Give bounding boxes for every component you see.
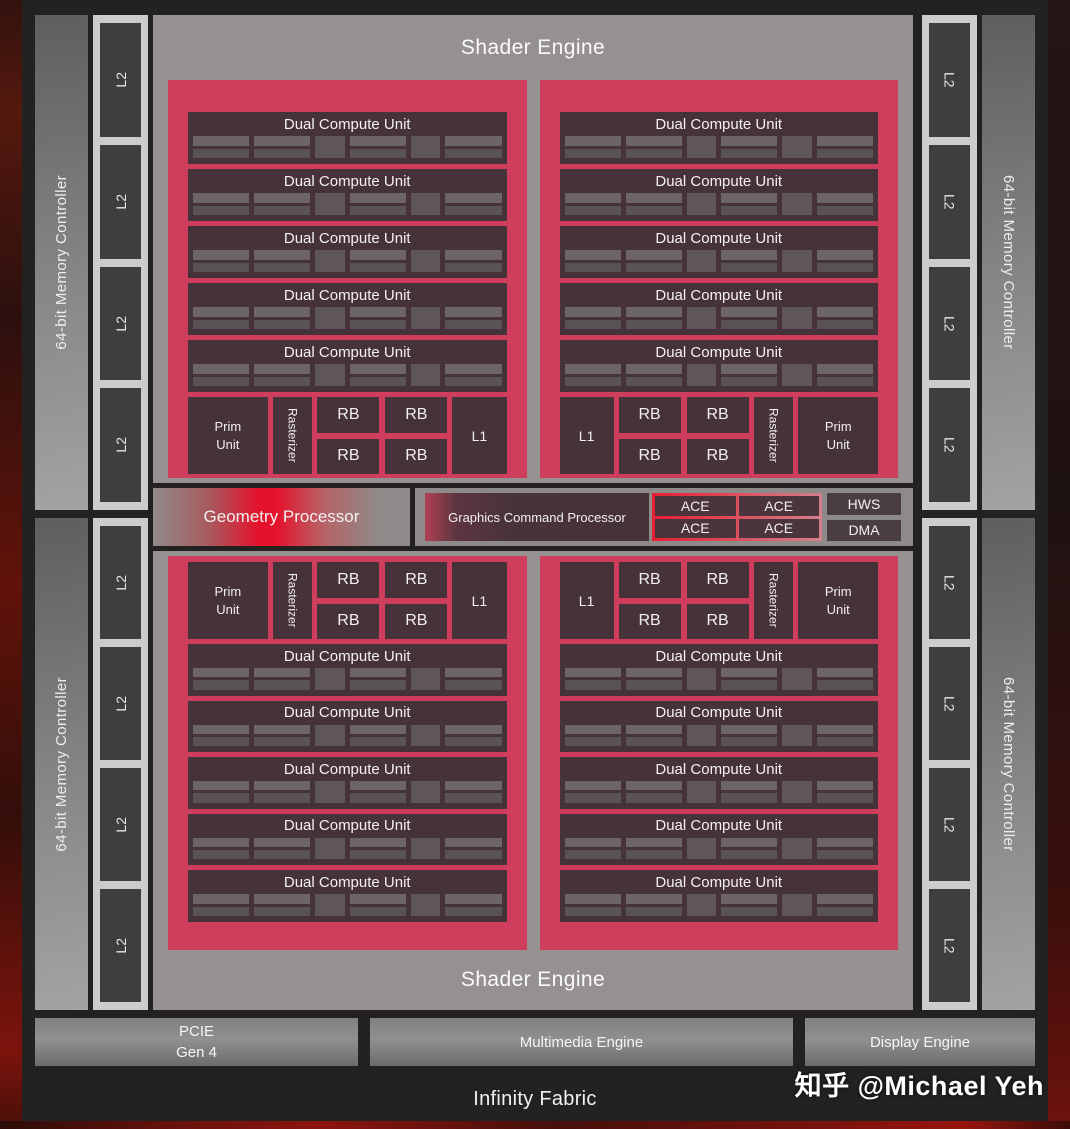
watermark: 知乎 @Michael Yeh <box>795 1064 1044 1103</box>
dual-compute-unit: Dual Compute Unit <box>560 757 879 809</box>
simd-block <box>445 250 501 260</box>
prim-unit-label: Prim Unit <box>208 418 248 453</box>
simd-pair <box>721 838 777 860</box>
rasterizer: Rasterizer <box>754 397 794 474</box>
rb-grid: RBRBRBRB <box>619 397 749 474</box>
simd-block <box>721 850 777 859</box>
rb-grid: RBRBRBRB <box>317 562 447 639</box>
simd-block <box>254 193 310 203</box>
dcu-subblocks <box>188 894 507 922</box>
display-engine-block: Display Engine <box>805 1018 1035 1066</box>
cache-block <box>782 838 812 860</box>
simd-block <box>445 193 501 203</box>
rasterizer-label: Rasterizer <box>766 573 780 628</box>
simd-block <box>350 193 406 203</box>
simd-block <box>565 250 621 260</box>
simd-block <box>193 377 249 387</box>
simd-block <box>445 307 501 317</box>
cache-block <box>411 250 441 272</box>
prim-unit: Prim Unit <box>798 562 878 639</box>
l2-block: L2 <box>100 23 141 137</box>
simd-pair <box>626 725 682 747</box>
dual-compute-unit: Dual Compute Unit <box>188 757 507 809</box>
simd-block <box>350 781 406 790</box>
simd-pair <box>817 307 873 329</box>
l2-label: L2 <box>113 696 129 712</box>
rasterizer: Rasterizer <box>273 397 313 474</box>
simd-block <box>817 206 873 216</box>
dcu-title: Dual Compute Unit <box>188 814 507 838</box>
simd-block <box>817 263 873 273</box>
simd-block <box>817 907 873 916</box>
l2-label: L2 <box>113 437 129 453</box>
simd-pair <box>254 364 310 386</box>
cache-block <box>315 781 345 803</box>
simd-block <box>626 680 682 689</box>
simd-block <box>817 838 873 847</box>
rb-block: RB <box>619 439 681 475</box>
simd-block <box>565 894 621 903</box>
simd-pair <box>350 781 406 803</box>
l2-block: L2 <box>929 768 970 881</box>
simd-block <box>817 781 873 790</box>
dual-compute-unit: Dual Compute Unit <box>188 340 507 392</box>
simd-block <box>350 680 406 689</box>
rb-block: RB <box>687 397 749 433</box>
simd-block <box>817 725 873 734</box>
cache-block <box>687 193 717 215</box>
rb-block: RB <box>317 562 379 598</box>
simd-block <box>350 838 406 847</box>
ace-block: ACE <box>739 496 820 516</box>
simd-pair <box>445 838 501 860</box>
simd-pair <box>565 307 621 329</box>
simd-pair <box>565 364 621 386</box>
simd-block <box>445 737 501 746</box>
simd-block <box>626 206 682 216</box>
simd-pair <box>350 668 406 690</box>
simd-pair <box>817 193 873 215</box>
dcu-title: Dual Compute Unit <box>560 340 879 364</box>
l2-block: L2 <box>100 388 141 502</box>
dual-compute-unit: Dual Compute Unit <box>560 226 879 278</box>
simd-block <box>445 668 501 677</box>
l1-cache: L1 <box>560 397 614 474</box>
simd-block <box>350 250 406 260</box>
simd-pair <box>350 838 406 860</box>
cache-block <box>315 838 345 860</box>
prim-unit-label: Prim Unit <box>208 583 248 618</box>
dcu-subblocks <box>188 307 507 335</box>
simd-pair <box>626 668 682 690</box>
dcu-title: Dual Compute Unit <box>560 814 879 838</box>
cache-block <box>687 838 717 860</box>
dcu-subblocks <box>560 136 879 164</box>
simd-block <box>626 364 682 374</box>
simd-block <box>626 193 682 203</box>
photo-edge-left <box>0 0 22 1129</box>
dual-compute-unit: Dual Compute Unit <box>188 226 507 278</box>
simd-block <box>626 136 682 146</box>
simd-block <box>193 364 249 374</box>
rasterizer: Rasterizer <box>754 562 794 639</box>
simd-pair <box>445 136 501 158</box>
simd-block <box>817 377 873 387</box>
simd-pair <box>817 838 873 860</box>
l2-label: L2 <box>942 316 958 332</box>
dual-compute-unit: Dual Compute Unit <box>560 340 879 392</box>
l2-label: L2 <box>113 72 129 88</box>
cache-block <box>315 136 345 158</box>
simd-pair <box>565 725 621 747</box>
cache-block <box>411 136 441 158</box>
dcu-title: Dual Compute Unit <box>188 169 507 193</box>
simd-block <box>445 894 501 903</box>
simd-block <box>193 206 249 216</box>
simd-block <box>445 263 501 273</box>
dual-compute-unit: Dual Compute Unit <box>188 112 507 164</box>
shader-array-bottom-right: L1 RBRBRBRB Rasterizer Prim Unit Dual Co… <box>540 556 899 950</box>
simd-block <box>445 320 501 330</box>
dual-compute-unit: Dual Compute Unit <box>188 814 507 866</box>
l2-block: L2 <box>929 388 970 502</box>
simd-block <box>254 737 310 746</box>
simd-pair <box>350 894 406 916</box>
simd-block <box>565 781 621 790</box>
dcu-title: Dual Compute Unit <box>560 283 879 307</box>
simd-block <box>193 307 249 317</box>
photo-edge-right <box>1048 0 1070 1129</box>
rb-block: RB <box>687 439 749 475</box>
simd-block <box>254 250 310 260</box>
graphics-command-processor: Graphics Command Processor <box>425 493 649 541</box>
rb-block: RB <box>619 604 681 640</box>
ace-grid: ACEACEACEACE <box>652 493 822 541</box>
rasterizer: Rasterizer <box>273 562 313 639</box>
simd-block <box>445 850 501 859</box>
simd-pair <box>445 894 501 916</box>
simd-block <box>193 250 249 260</box>
cache-block <box>411 781 441 803</box>
dcu-subblocks <box>560 668 879 696</box>
l2-block: L2 <box>100 145 141 259</box>
dual-compute-unit: Dual Compute Unit <box>188 701 507 753</box>
l2-block: L2 <box>100 526 141 639</box>
render-backend-row: L1 RBRBRBRB Rasterizer Prim Unit <box>560 397 879 474</box>
dcu-title: Dual Compute Unit <box>188 644 507 668</box>
simd-block <box>193 668 249 677</box>
simd-block <box>350 149 406 159</box>
simd-block <box>254 894 310 903</box>
simd-pair <box>721 725 777 747</box>
command-strip: Geometry Processor Graphics Command Proc… <box>153 488 913 546</box>
simd-block <box>565 263 621 273</box>
rb-block: RB <box>317 604 379 640</box>
ace-block: ACE <box>655 519 736 539</box>
simd-pair <box>445 307 501 329</box>
cache-block <box>687 136 717 158</box>
dcu-subblocks <box>188 364 507 392</box>
simd-block <box>565 320 621 330</box>
cache-block <box>315 725 345 747</box>
simd-block <box>350 377 406 387</box>
dcu-subblocks <box>560 725 879 753</box>
simd-pair <box>193 725 249 747</box>
dual-compute-unit: Dual Compute Unit <box>560 814 879 866</box>
simd-pair <box>565 193 621 215</box>
prim-unit: Prim Unit <box>188 562 268 639</box>
simd-block <box>193 793 249 802</box>
simd-block <box>817 320 873 330</box>
simd-block <box>565 737 621 746</box>
memory-controller-bottom-left: 64-bit Memory Controller <box>35 518 88 1010</box>
simd-block <box>626 149 682 159</box>
prim-unit-label: Prim Unit <box>818 418 858 453</box>
simd-block <box>626 668 682 677</box>
dual-compute-unit: Dual Compute Unit <box>560 169 879 221</box>
simd-pair <box>193 136 249 158</box>
simd-block <box>254 206 310 216</box>
simd-pair <box>445 725 501 747</box>
simd-block <box>565 307 621 317</box>
simd-block <box>350 725 406 734</box>
simd-block <box>445 793 501 802</box>
l2-label: L2 <box>942 575 958 591</box>
shader-engine-title: Shader Engine <box>153 15 913 80</box>
dcu-title: Dual Compute Unit <box>188 701 507 725</box>
simd-pair <box>254 725 310 747</box>
simd-block <box>626 907 682 916</box>
l2-label: L2 <box>113 575 129 591</box>
simd-block <box>565 725 621 734</box>
l2-label: L2 <box>942 194 958 210</box>
simd-block <box>626 307 682 317</box>
simd-block <box>193 136 249 146</box>
simd-block <box>350 206 406 216</box>
l2-column-bottom-right: L2 L2 L2 L2 <box>922 518 977 1010</box>
l2-label: L2 <box>942 437 958 453</box>
simd-block <box>721 907 777 916</box>
dcu-subblocks <box>560 193 879 221</box>
l2-label: L2 <box>113 194 129 210</box>
shader-arrays-row: Prim Unit Rasterizer RBRBRBRB L1 Dual Co… <box>153 551 913 950</box>
simd-pair <box>254 136 310 158</box>
simd-block <box>445 206 501 216</box>
dcu-subblocks <box>188 838 507 866</box>
dcu-title: Dual Compute Unit <box>188 340 507 364</box>
simd-pair <box>565 136 621 158</box>
dcu-subblocks <box>188 193 507 221</box>
cache-block <box>315 894 345 916</box>
simd-pair <box>721 781 777 803</box>
simd-block <box>721 680 777 689</box>
simd-block <box>565 907 621 916</box>
memory-controller-label: 64-bit Memory Controller <box>1000 175 1017 350</box>
simd-pair <box>626 307 682 329</box>
simd-block <box>626 320 682 330</box>
simd-block <box>254 850 310 859</box>
simd-block <box>817 364 873 374</box>
cache-block <box>782 193 812 215</box>
l2-block: L2 <box>929 145 970 259</box>
render-backend-row: Prim Unit Rasterizer RBRBRBRB L1 <box>188 397 507 474</box>
l2-block: L2 <box>929 23 970 137</box>
cache-block <box>782 364 812 386</box>
l1-cache: L1 <box>452 562 506 639</box>
simd-block <box>817 193 873 203</box>
cache-block <box>411 725 441 747</box>
simd-block <box>565 680 621 689</box>
simd-block <box>565 793 621 802</box>
simd-block <box>445 907 501 916</box>
simd-block <box>193 680 249 689</box>
shader-array-top-right: Dual Compute Unit Dual Compute Unit <box>540 80 899 478</box>
simd-pair <box>193 894 249 916</box>
render-backend-row: L1 RBRBRBRB Rasterizer Prim Unit <box>560 562 879 639</box>
dual-compute-unit: Dual Compute Unit <box>188 169 507 221</box>
simd-pair <box>350 364 406 386</box>
cache-block <box>315 250 345 272</box>
memory-controller-label: 64-bit Memory Controller <box>53 175 70 350</box>
simd-block <box>721 307 777 317</box>
l2-label: L2 <box>113 938 129 954</box>
simd-block <box>254 668 310 677</box>
simd-block <box>193 263 249 273</box>
dcu-subblocks <box>560 781 879 809</box>
rb-block: RB <box>317 439 379 475</box>
simd-pair <box>817 136 873 158</box>
simd-block <box>193 781 249 790</box>
cache-block <box>782 307 812 329</box>
rasterizer-label: Rasterizer <box>286 573 300 628</box>
simd-pair <box>254 838 310 860</box>
simd-block <box>565 377 621 387</box>
simd-block <box>445 364 501 374</box>
simd-block <box>445 136 501 146</box>
geometry-processor: Geometry Processor <box>153 488 410 546</box>
l2-label: L2 <box>113 316 129 332</box>
dcu-title: Dual Compute Unit <box>188 757 507 781</box>
dcu-subblocks <box>188 781 507 809</box>
simd-block <box>565 206 621 216</box>
simd-pair <box>565 894 621 916</box>
dcu-subblocks <box>188 250 507 278</box>
cache-block <box>411 838 441 860</box>
dual-compute-unit: Dual Compute Unit <box>560 644 879 696</box>
cache-block <box>315 364 345 386</box>
cache-block <box>687 725 717 747</box>
simd-block <box>626 781 682 790</box>
l2-block: L2 <box>100 768 141 881</box>
simd-pair <box>254 193 310 215</box>
dcu-title: Dual Compute Unit <box>560 757 879 781</box>
simd-pair <box>626 193 682 215</box>
memory-controller-bottom-right: 64-bit Memory Controller <box>982 518 1035 1010</box>
simd-pair <box>721 250 777 272</box>
simd-pair <box>350 193 406 215</box>
simd-pair <box>193 250 249 272</box>
simd-block <box>350 136 406 146</box>
dcu-subblocks <box>188 136 507 164</box>
dcu-title: Dual Compute Unit <box>188 112 507 136</box>
cache-block <box>315 668 345 690</box>
simd-block <box>445 680 501 689</box>
render-backend-row: Prim Unit Rasterizer RBRBRBRB L1 <box>188 562 507 639</box>
simd-block <box>350 793 406 802</box>
dcu-subblocks <box>560 838 879 866</box>
simd-block <box>193 149 249 159</box>
ace-block: ACE <box>739 519 820 539</box>
l2-label: L2 <box>113 817 129 833</box>
simd-block <box>626 250 682 260</box>
dual-compute-unit: Dual Compute Unit <box>560 870 879 922</box>
simd-pair <box>721 894 777 916</box>
simd-pair <box>193 307 249 329</box>
shader-engine-title: Shader Engine <box>153 950 913 1010</box>
simd-block <box>193 193 249 203</box>
simd-block <box>445 377 501 387</box>
l2-column-top-left: L2 L2 L2 L2 <box>93 15 148 510</box>
simd-pair <box>254 250 310 272</box>
simd-block <box>817 668 873 677</box>
simd-block <box>626 850 682 859</box>
rb-grid: RBRBRBRB <box>317 397 447 474</box>
cache-block <box>315 193 345 215</box>
command-processor-group: Graphics Command Processor ACEACEACEACE … <box>415 488 913 546</box>
cache-block <box>411 668 441 690</box>
dcu-subblocks <box>560 307 879 335</box>
simd-block <box>721 793 777 802</box>
cache-block <box>687 307 717 329</box>
hws-block: HWS <box>827 493 901 515</box>
l1-cache: L1 <box>560 562 614 639</box>
simd-pair <box>193 668 249 690</box>
simd-pair <box>254 668 310 690</box>
simd-pair <box>565 781 621 803</box>
simd-block <box>721 364 777 374</box>
hws-dma-stack: HWS DMA <box>827 493 901 541</box>
simd-pair <box>626 894 682 916</box>
simd-block <box>817 136 873 146</box>
simd-block <box>626 793 682 802</box>
simd-block <box>445 781 501 790</box>
dcu-title: Dual Compute Unit <box>560 870 879 894</box>
simd-block <box>193 838 249 847</box>
simd-block <box>721 263 777 273</box>
cache-block <box>315 307 345 329</box>
shader-engine-bottom: Prim Unit Rasterizer RBRBRBRB L1 Dual Co… <box>153 551 913 1010</box>
simd-block <box>350 307 406 317</box>
shader-array-bottom-left: Prim Unit Rasterizer RBRBRBRB L1 Dual Co… <box>168 556 527 950</box>
simd-pair <box>817 364 873 386</box>
simd-block <box>817 307 873 317</box>
simd-block <box>193 725 249 734</box>
cache-block <box>782 725 812 747</box>
simd-block <box>254 793 310 802</box>
l2-block: L2 <box>929 526 970 639</box>
simd-pair <box>565 250 621 272</box>
simd-block <box>721 838 777 847</box>
rb-grid: RBRBRBRB <box>619 562 749 639</box>
dcu-title: Dual Compute Unit <box>560 701 879 725</box>
simd-pair <box>721 136 777 158</box>
simd-block <box>565 136 621 146</box>
simd-pair <box>721 364 777 386</box>
dcu-title: Dual Compute Unit <box>560 226 879 250</box>
simd-pair <box>193 364 249 386</box>
simd-block <box>193 894 249 903</box>
l2-label: L2 <box>942 938 958 954</box>
